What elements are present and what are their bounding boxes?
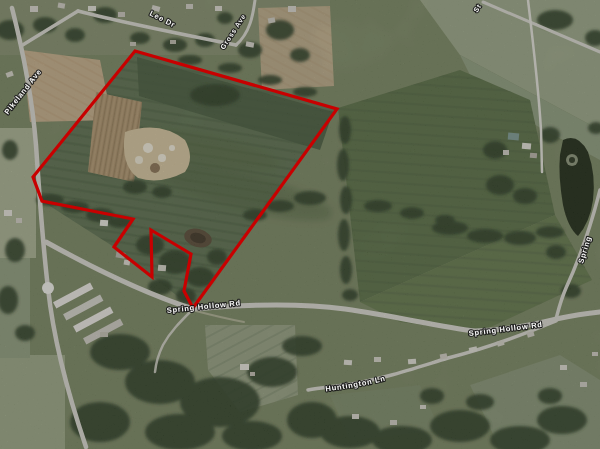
aerial-imagery: Pikeland Ave Lee Dr Gross Ave St Spring … bbox=[0, 0, 600, 449]
map-canvas[interactable]: Pikeland Ave Lee Dr Gross Ave St Spring … bbox=[0, 0, 600, 449]
photo-grain-light bbox=[0, 0, 600, 449]
